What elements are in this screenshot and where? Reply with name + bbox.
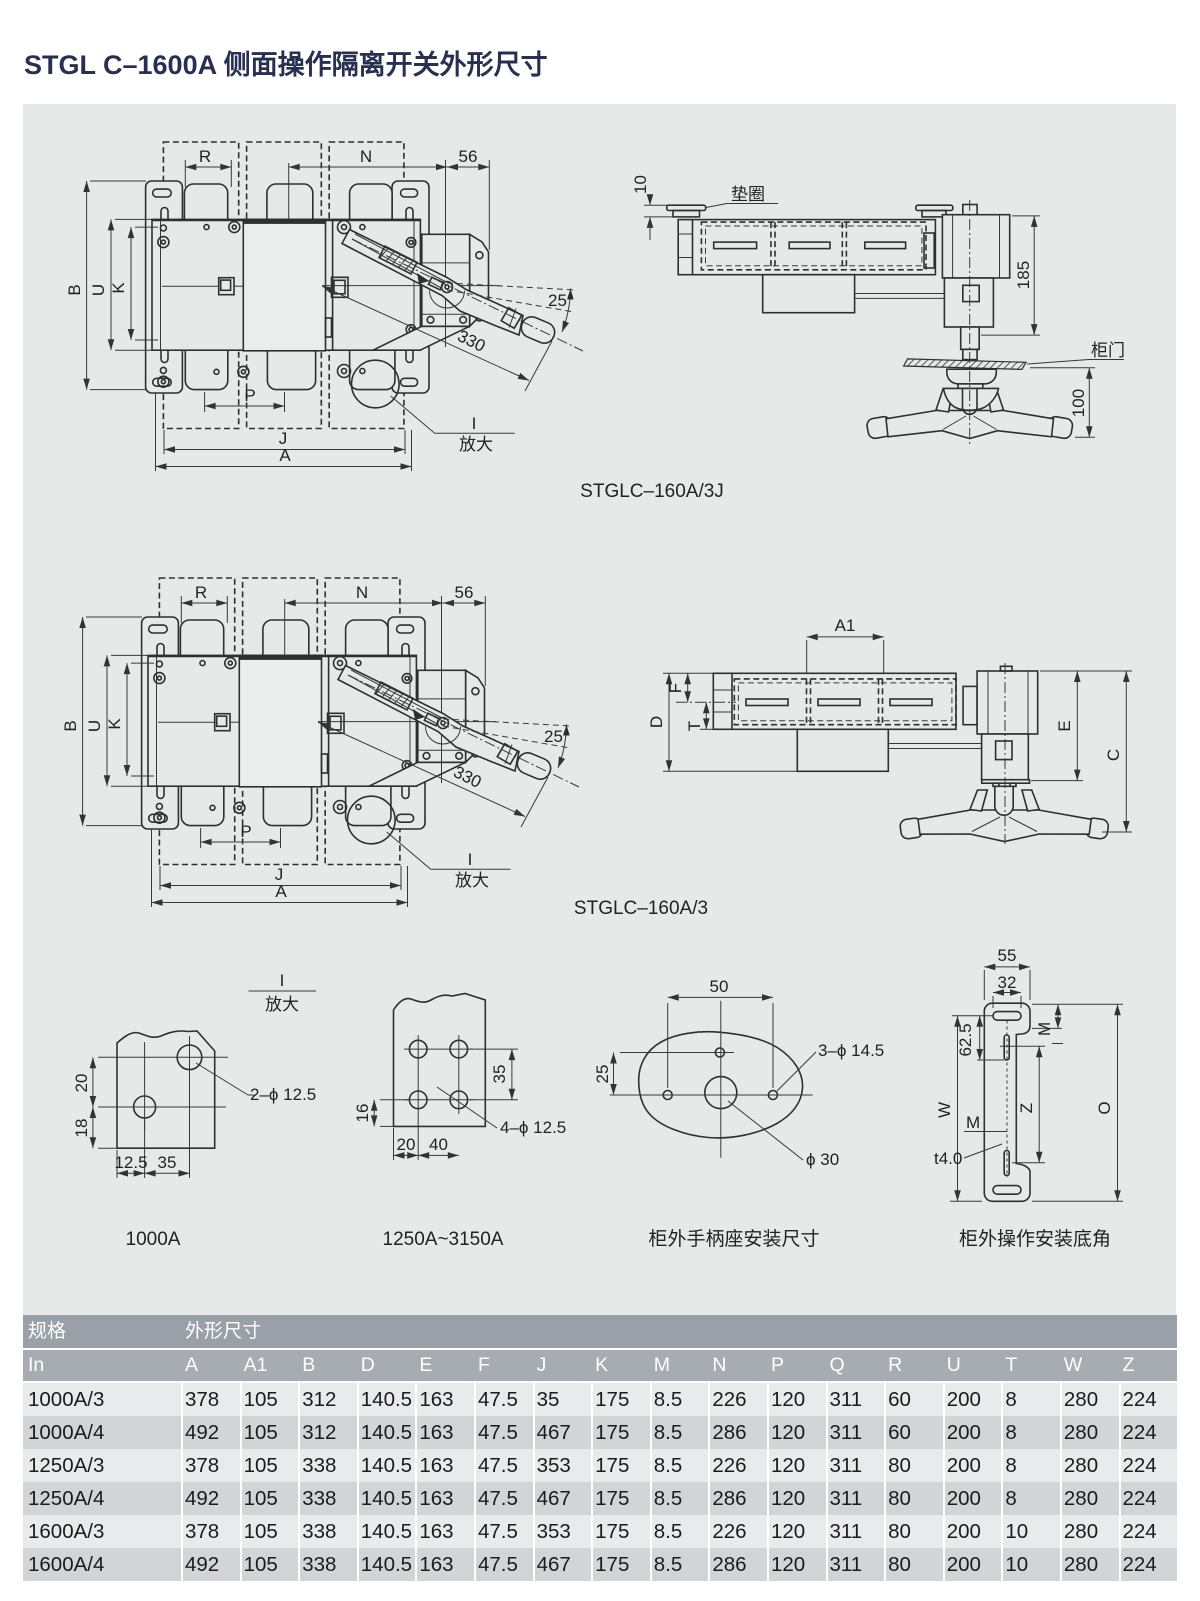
svg-text:18: 18 — [72, 1119, 91, 1138]
svg-text:12.5: 12.5 — [114, 1153, 147, 1172]
svg-text:B: B — [65, 284, 84, 295]
svg-text:35: 35 — [158, 1153, 177, 1172]
svg-text:E: E — [1055, 720, 1074, 731]
svg-text:185: 185 — [1014, 261, 1033, 289]
svg-text:M: M — [966, 1113, 980, 1132]
svg-text:4–ϕ 12.5: 4–ϕ 12.5 — [500, 1118, 566, 1137]
svg-text:D: D — [647, 716, 666, 728]
svg-text:O: O — [1095, 1101, 1114, 1114]
svg-text:N: N — [360, 147, 372, 166]
svg-text:50: 50 — [710, 977, 729, 996]
svg-text:20: 20 — [397, 1135, 416, 1154]
svg-text:56: 56 — [459, 147, 478, 166]
svg-text:F: F — [666, 683, 685, 693]
svg-text:t4.0: t4.0 — [934, 1149, 962, 1168]
svg-text:STGLC–160A/3: STGLC–160A/3 — [574, 898, 708, 919]
svg-text:STGLC–160A/3J: STGLC–160A/3J — [580, 481, 724, 502]
svg-text:放大: 放大 — [459, 435, 493, 454]
svg-text:K: K — [109, 282, 128, 294]
svg-text:1000A: 1000A — [126, 1229, 181, 1250]
svg-text:I: I — [280, 971, 285, 990]
svg-text:35: 35 — [490, 1065, 509, 1084]
svg-text:M: M — [1035, 1022, 1054, 1036]
svg-text:A1: A1 — [835, 616, 856, 635]
svg-text:Z: Z — [1017, 1103, 1036, 1113]
svg-text:25°: 25° — [548, 291, 574, 310]
svg-text:W: W — [935, 1102, 954, 1118]
svg-text:2–ϕ 12.5: 2–ϕ 12.5 — [250, 1085, 316, 1104]
svg-text:1250A~3150A: 1250A~3150A — [383, 1229, 504, 1250]
svg-text:U: U — [89, 284, 108, 296]
svg-text:55: 55 — [998, 946, 1017, 965]
svg-text:16: 16 — [353, 1104, 372, 1123]
svg-text:I: I — [472, 414, 477, 433]
svg-text:20: 20 — [72, 1074, 91, 1093]
svg-text:柜外操作安装底角: 柜外操作安装底角 — [959, 1228, 1111, 1250]
svg-text:P: P — [244, 386, 255, 405]
svg-text:T: T — [685, 721, 704, 731]
svg-text:ϕ 30: ϕ 30 — [806, 1150, 839, 1169]
svg-text:垫圈: 垫圈 — [731, 185, 765, 204]
svg-text:3–ϕ 14.5: 3–ϕ 14.5 — [818, 1041, 884, 1060]
svg-text:R: R — [199, 147, 211, 166]
svg-text:10: 10 — [631, 175, 650, 194]
svg-text:A: A — [279, 446, 291, 465]
svg-text:放大: 放大 — [265, 995, 299, 1014]
svg-text:330: 330 — [454, 326, 488, 356]
svg-text:32: 32 — [998, 973, 1017, 992]
svg-text:C: C — [1104, 749, 1123, 761]
svg-text:柜门: 柜门 — [1091, 341, 1125, 360]
svg-text:柜外手柄座安装尺寸: 柜外手柄座安装尺寸 — [648, 1228, 819, 1250]
svg-text:100: 100 — [1069, 389, 1088, 417]
svg-text:40: 40 — [429, 1135, 448, 1154]
svg-text:25: 25 — [593, 1065, 612, 1084]
svg-text:62.5: 62.5 — [956, 1023, 975, 1056]
